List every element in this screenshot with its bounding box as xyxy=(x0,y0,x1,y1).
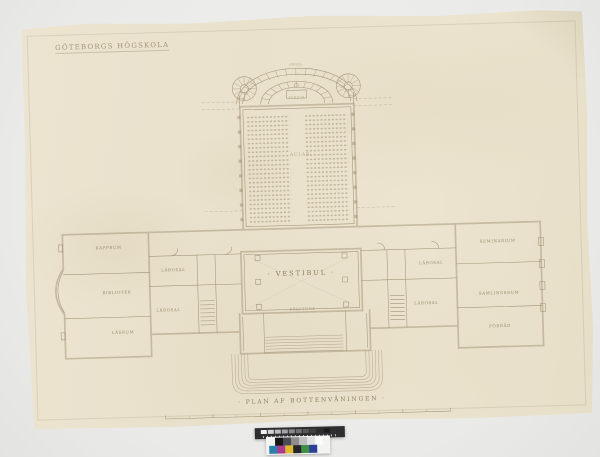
entry-hall-label: FÖRSTUGA xyxy=(290,307,316,312)
drawing-sheet: GÖTEBORGS HÖGSKOLA xyxy=(18,8,595,432)
room-label: LÄROSAL xyxy=(419,260,443,266)
gray-patch xyxy=(315,437,323,445)
color-patch xyxy=(309,445,317,453)
room-label: KAPPRUM xyxy=(96,245,122,251)
room-label: BIBLIOTEK xyxy=(102,289,131,295)
gray-patch xyxy=(307,437,315,445)
color-patch xyxy=(285,445,293,453)
gray-patch xyxy=(283,437,291,445)
apse-top-label: ORGEL xyxy=(289,62,302,66)
photo-stage: GÖTEBORGS HÖGSKOLA xyxy=(0,0,600,457)
room-label: LÄROSAL xyxy=(161,267,185,273)
podium-label: PODIUM xyxy=(288,95,304,99)
room-label: LÄROSAL xyxy=(156,307,180,313)
gray-step-patch xyxy=(296,429,302,434)
gray-step-patch xyxy=(310,428,316,433)
color-patch xyxy=(277,445,285,453)
room-label: SEMINARIUM xyxy=(480,238,516,244)
gray-step-patch xyxy=(275,429,281,434)
gray-patch xyxy=(299,437,307,445)
gray-step-patch xyxy=(282,429,288,434)
gray-patch xyxy=(291,437,299,445)
color-patch xyxy=(301,445,309,453)
room-label: LÄROSAL xyxy=(414,300,438,306)
gray-step-patch xyxy=(268,429,274,434)
color-patch xyxy=(269,446,277,454)
gray-step-patch xyxy=(261,429,267,434)
gray-step-patch xyxy=(289,429,295,434)
patch-card xyxy=(266,435,330,455)
room-label: FÖRRÅD xyxy=(489,323,511,329)
room-label: LÄSRUM xyxy=(112,329,135,335)
color-calibration-target xyxy=(249,423,362,457)
gray-step-patch xyxy=(303,428,309,433)
auditorium-label: AULAN xyxy=(290,152,310,158)
color-patch xyxy=(293,445,301,453)
gray-step-patch xyxy=(324,428,330,433)
gray-step-patch xyxy=(317,428,323,433)
color-patches xyxy=(269,445,317,454)
floor-plan-drawing xyxy=(18,8,595,432)
gray-patch xyxy=(275,438,283,446)
